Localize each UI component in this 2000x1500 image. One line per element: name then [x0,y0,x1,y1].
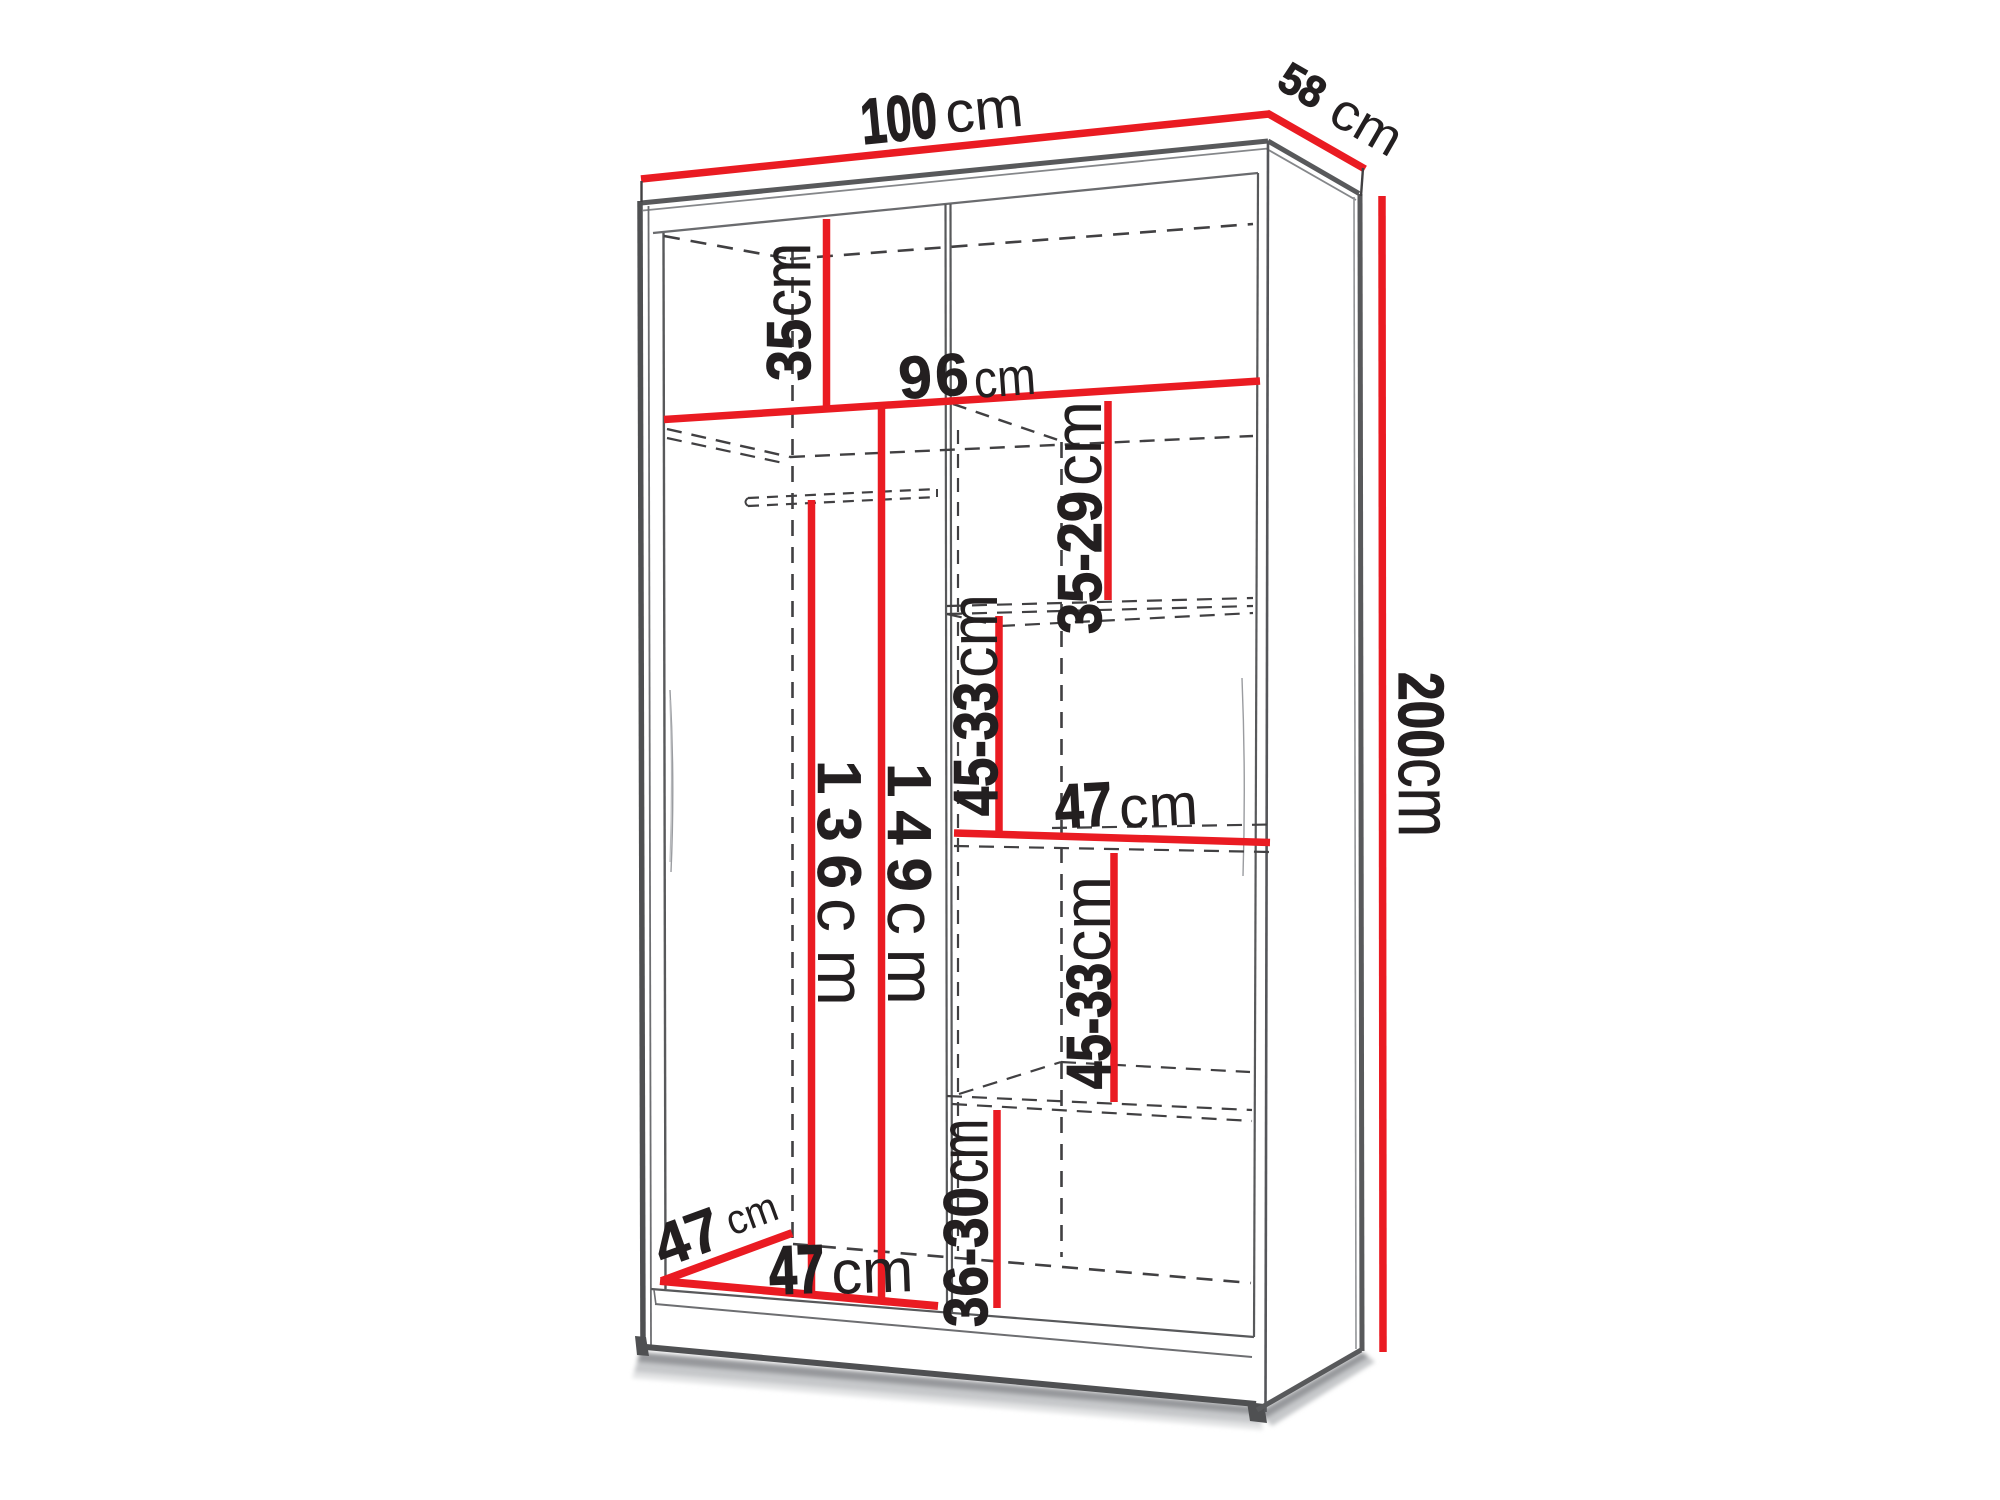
svg-text:cm: cm [926,1119,1002,1183]
svg-text:cm: cm [803,898,879,1006]
svg-text:149: 149 [874,763,943,892]
svg-text:cm: cm [942,74,1026,146]
svg-text:cm: cm [972,347,1038,410]
svg-text:cm: cm [936,594,1012,678]
svg-text:47: 47 [1053,770,1114,842]
svg-text:cm: cm [1382,758,1467,837]
svg-text:36-30: 36-30 [932,1187,1001,1327]
svg-text:45-33: 45-33 [942,682,1011,816]
svg-text:100: 100 [857,79,940,158]
svg-text:45-33: 45-33 [1055,963,1124,1089]
svg-text:cm: cm [1040,401,1116,486]
svg-text:47: 47 [768,1231,826,1309]
svg-text:cm: cm [749,243,825,317]
svg-text:cm: cm [1117,771,1199,841]
svg-text:200: 200 [1385,672,1457,758]
svg-text:35: 35 [755,319,824,381]
svg-text:cm: cm [1049,876,1125,962]
svg-text:35-29: 35-29 [1046,491,1115,634]
svg-text:136: 136 [804,760,873,889]
svg-text:cm: cm [830,1236,914,1308]
svg-text:cm: cm [873,901,949,1005]
